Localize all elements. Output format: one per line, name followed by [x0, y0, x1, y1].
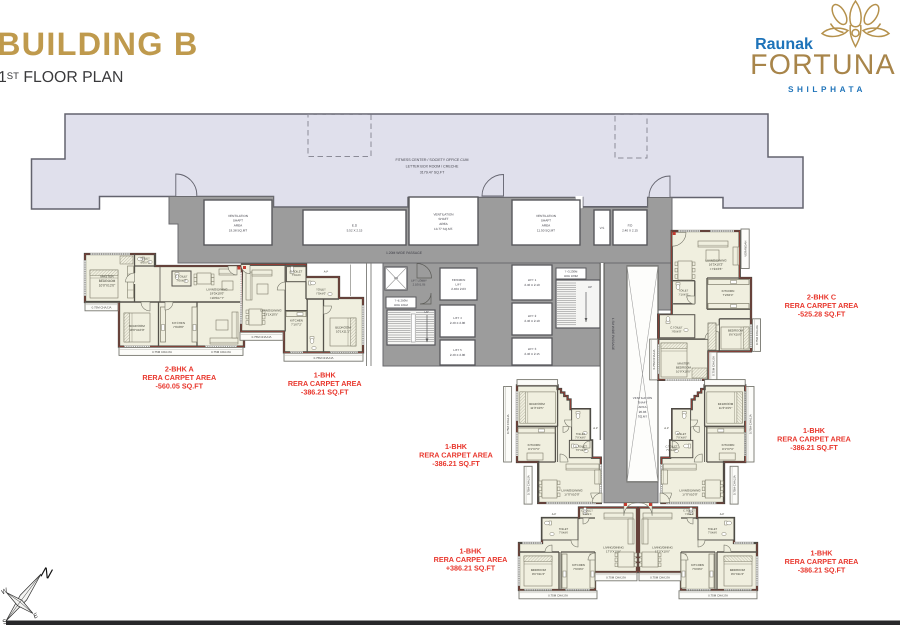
- svg-text:T+3.230M: T+3.230M: [565, 270, 578, 274]
- svg-text:7’0X8’0": 7’0X8’0": [692, 567, 703, 571]
- svg-text:0.75M CHAJJA: 0.75M CHAJJA: [252, 335, 272, 339]
- svg-text:TOILET: TOILET: [576, 433, 586, 436]
- svg-text:SHAFT: SHAFT: [541, 219, 551, 223]
- svg-text:-386.21 SQ.FT: -386.21 SQ.FT: [301, 388, 349, 397]
- svg-text:LIFT 1: LIFT 1: [528, 278, 537, 282]
- svg-text:0.75M CHAJJA: 0.75M CHAJJA: [152, 350, 172, 354]
- svg-text:7’0"X4’0": 7’0"X4’0": [666, 449, 677, 452]
- svg-text:SQ.MT: SQ.MT: [638, 414, 648, 418]
- svg-text:7’0X8’0": 7’0X8’0": [173, 325, 184, 329]
- svg-text:11’3"X9’5": 11’3"X9’5": [530, 406, 544, 410]
- svg-text:MASTER: MASTER: [100, 275, 114, 279]
- svg-text:2.40 X 2.15: 2.40 X 2.15: [524, 352, 540, 356]
- svg-text:19.38 SQ.MT: 19.38 SQ.MT: [229, 228, 248, 232]
- svg-text:7’0X4’0: 7’0X4’0: [559, 532, 568, 535]
- svg-text:LETTER BOX ROOM / CRECHE: LETTER BOX ROOM / CRECHE: [406, 165, 459, 169]
- svg-text:FORTUNA: FORTUNA: [750, 49, 896, 81]
- svg-text:8’6"X11’3": 8’6"X11’3": [731, 572, 744, 576]
- svg-text:2.40 X 2.10: 2.40 X 2.10: [524, 283, 540, 287]
- svg-text:TOILET: TOILET: [708, 528, 718, 531]
- svg-text:E.D: E.D: [352, 224, 358, 228]
- svg-text:1.5M WIDE PASSAGE: 1.5M WIDE PASSAGE: [611, 318, 615, 350]
- svg-text:8’6"X10’0": 8’6"X10’0": [729, 333, 742, 337]
- svg-text:11.50 SQ.MT: 11.50 SQ.MT: [537, 228, 555, 232]
- svg-text:0.75M CHAJJA: 0.75M CHAJJA: [755, 325, 759, 345]
- svg-text:7’2X8’0": 7’2X8’0": [723, 293, 734, 297]
- svg-text:0.75M CHAJJA: 0.75M CHAJJA: [548, 593, 568, 597]
- svg-text:7’0X4’0: 7’0X4’0: [685, 513, 694, 516]
- svg-text:C.TOILET: C.TOILET: [290, 270, 302, 273]
- svg-text:4’0X7’2: 4’0X7’2: [140, 260, 150, 264]
- svg-text:P.D: P.D: [628, 224, 634, 228]
- svg-text:2.10X1.05: 2.10X1.05: [413, 283, 426, 287]
- svg-text:VERANDAH: VERANDAH: [744, 241, 748, 257]
- svg-text:2.40 X 2.00: 2.40 X 2.00: [450, 321, 466, 325]
- svg-text:0.75M CHAJJA: 0.75M CHAJJA: [708, 593, 728, 597]
- svg-text:0.75M CHAJJA: 0.75M CHAJJA: [711, 356, 715, 376]
- svg-text:A.P: A.P: [720, 512, 725, 516]
- svg-text:8’1"X7’0": 8’1"X7’0": [722, 447, 734, 451]
- svg-text:SHILPHATA: SHILPHATA: [788, 85, 866, 94]
- svg-text:VENTILATION: VENTILATION: [433, 212, 453, 216]
- svg-text:7’0X4’0": 7’0X4’0": [316, 291, 326, 295]
- svg-text:FITNESS CENTER / SOCIETY OFFIC: FITNESS CENTER / SOCIETY OFFICE CUM: [395, 158, 468, 162]
- svg-text:RHE 161M: RHE 161M: [394, 303, 408, 307]
- svg-text:V.S: V.S: [394, 276, 398, 280]
- svg-text:-525.28 SQ.FT: -525.28 SQ.FT: [798, 310, 846, 319]
- svg-text:7’0X4’0": 7’0X4’0": [671, 329, 681, 333]
- svg-text:2.40 X 2.00: 2.40 X 2.00: [450, 353, 466, 357]
- svg-text:10’1X11’1": 10’1X11’1": [336, 330, 350, 334]
- svg-text:0.75M CHAJJA: 0.75M CHAJJA: [92, 305, 112, 309]
- svg-text:2.40 X 2.10: 2.40 X 2.10: [524, 319, 540, 323]
- svg-text:SHAFT: SHAFT: [438, 217, 448, 221]
- svg-text:17’0"X10’0": 17’0"X10’0": [682, 493, 697, 497]
- svg-text:A.P: A.P: [324, 270, 329, 274]
- svg-text:-386.21 SQ.FT: -386.21 SQ.FT: [798, 566, 846, 575]
- svg-text:10’0"X12’0": 10’0"X12’0": [99, 283, 115, 287]
- svg-text:A.P: A.P: [552, 512, 557, 516]
- svg-text:LIFT 5: LIFT 5: [453, 348, 462, 352]
- svg-text:17’0"X10’0": 17’0"X10’0": [606, 550, 621, 554]
- svg-text:-386.21 SQ.FT: -386.21 SQ.FT: [790, 443, 838, 452]
- svg-text:AREA: AREA: [234, 224, 243, 228]
- svg-text:17’0"X10’0": 17’0"X10’0": [564, 493, 579, 497]
- svg-text:BEDROOM: BEDROOM: [99, 279, 116, 283]
- svg-text:VENTILATION: VENTILATION: [536, 214, 556, 218]
- svg-text:A.P: A.P: [664, 426, 669, 430]
- svg-text:SHAFT: SHAFT: [638, 401, 648, 405]
- svg-text:20.06: 20.06: [639, 410, 647, 414]
- svg-text:VENTILATION: VENTILATION: [633, 396, 652, 400]
- svg-text:LIFT 4: LIFT 4: [453, 316, 462, 320]
- svg-text:7’0X4’0: 7’0X4’0: [292, 274, 301, 277]
- svg-text:UP: UP: [588, 285, 592, 289]
- svg-text:7’1X4’0": 7’1X4’0": [678, 292, 688, 296]
- svg-text:0.75M CHAJJA: 0.75M CHAJJA: [506, 414, 510, 434]
- svg-text:UP: UP: [424, 310, 428, 314]
- svg-text:17’0"X10’0": 17’0"X10’0": [655, 550, 670, 554]
- svg-text:0.75M CHAJJA: 0.75M CHAJJA: [650, 575, 670, 579]
- svg-text:2.40X 2.03: 2.40X 2.03: [451, 287, 466, 291]
- svg-text:S.TOILET: S.TOILET: [575, 445, 587, 448]
- svg-text:7’0"X4’0": 7’0"X4’0": [676, 437, 687, 440]
- svg-text:7’0X8’0": 7’0X8’0": [573, 567, 584, 571]
- svg-text:1ST FLOOR PLAN: 1ST FLOOR PLAN: [0, 69, 123, 86]
- svg-text:0.75M CHAJJA: 0.75M CHAJJA: [527, 475, 531, 495]
- svg-text:LIFT 3: LIFT 3: [528, 347, 537, 351]
- svg-text:V.S: V.S: [600, 226, 605, 230]
- svg-text:A.P: A.P: [593, 426, 598, 430]
- svg-text:AREA: AREA: [542, 224, 551, 228]
- svg-text:1.20M WIDE PASSAGE: 1.20M WIDE PASSAGE: [386, 251, 423, 255]
- svg-text:7’0"X4’0": 7’0"X4’0": [576, 449, 587, 452]
- svg-text:+386.21 SQ.FT: +386.21 SQ.FT: [446, 564, 496, 573]
- svg-text:-560.05 SQ.FT: -560.05 SQ.FT: [156, 382, 204, 391]
- svg-text:-386.21 SQ.FT: -386.21 SQ.FT: [432, 459, 480, 468]
- svg-text:19’1X10’5": 19’1X10’5": [264, 313, 278, 317]
- svg-text:AREA: AREA: [439, 222, 448, 226]
- svg-text:+7’2X3’6": +7’2X3’6": [710, 267, 723, 271]
- svg-text:C.TOILET: C.TOILET: [665, 445, 677, 448]
- svg-text:VENTILATION: VENTILATION: [228, 214, 248, 218]
- svg-text:TOILET: TOILET: [677, 433, 687, 436]
- svg-text:SHAFT: SHAFT: [233, 219, 243, 223]
- svg-text:7’1X7’2": 7’1X7’2": [291, 323, 302, 327]
- svg-text:8’1"X7’0": 8’1"X7’0": [528, 447, 540, 451]
- svg-text:0.75M CHAJJA: 0.75M CHAJJA: [606, 575, 626, 579]
- svg-text:FIREMEN: FIREMEN: [452, 278, 466, 282]
- svg-text:2.40 X 2.15: 2.40 X 2.15: [622, 229, 638, 233]
- svg-text:7’0X4’0: 7’0X4’0: [708, 532, 717, 535]
- svg-text:BUILDING B: BUILDING B: [0, 26, 199, 62]
- svg-text:LIFT: LIFT: [455, 283, 461, 287]
- svg-text:7’0X4’0: 7’0X4’0: [583, 513, 592, 516]
- svg-text:5.52 X 2.15: 5.52 X 2.15: [347, 229, 363, 233]
- svg-text:7’0"X4’0": 7’0"X4’0": [575, 437, 586, 440]
- svg-text:LIFT 2: LIFT 2: [528, 314, 537, 318]
- svg-text:11’3"X9’5": 11’3"X9’5": [719, 406, 733, 410]
- svg-text:0.75M CHAJJA: 0.75M CHAJJA: [211, 350, 231, 354]
- svg-text:7’0X4’0": 7’0X4’0": [176, 278, 186, 282]
- svg-text:13.77 SQ.MT.: 13.77 SQ.MT.: [434, 227, 453, 231]
- svg-text:+10’0X7’7": +10’0X7’7": [210, 296, 225, 300]
- svg-text:8’6"X11’3": 8’6"X11’3": [532, 572, 545, 576]
- svg-text:3179.47 SQ.FT: 3179.47 SQ.FT: [420, 171, 445, 175]
- svg-text:T+E 250M: T+E 250M: [395, 299, 409, 303]
- svg-text:10’9"X10’0": 10’9"X10’0": [676, 370, 691, 374]
- svg-text:0.75M CHAJJA: 0.75M CHAJJA: [733, 475, 737, 495]
- svg-text:0.75M CHAJJA: 0.75M CHAJJA: [749, 414, 753, 434]
- svg-text:AREA: AREA: [638, 405, 646, 409]
- svg-text:RHE 103M: RHE 103M: [564, 274, 578, 278]
- svg-text:TOILET: TOILET: [559, 528, 569, 531]
- svg-text:0.75M CHAJJA: 0.75M CHAJJA: [314, 356, 334, 360]
- svg-text:10’0"X10’0": 10’0"X10’0": [129, 328, 144, 332]
- svg-text:0.75M CHAJJA: 0.75M CHAJJA: [652, 350, 656, 370]
